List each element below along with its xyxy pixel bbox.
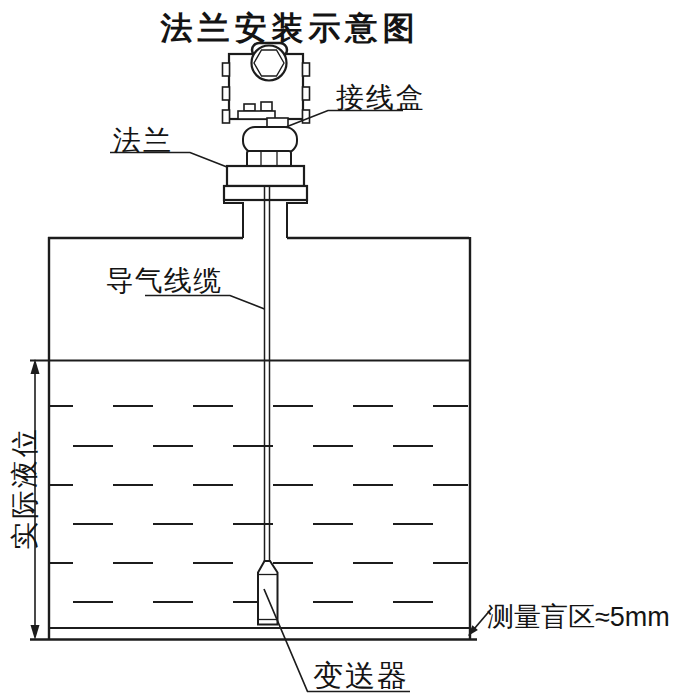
tank-nozzle [224, 200, 307, 238]
vent-cable [265, 186, 270, 562]
label-vent-cable: 导气线缆 [106, 262, 222, 300]
diagram-title: 法兰安装示意图 [140, 7, 440, 51]
flange-plate-lower [224, 186, 307, 200]
flange-installation-diagram: 法兰安装示意图 接线盒 法兰 导气线缆 实际液位 测量盲区≈5mm 变送器 [0, 0, 700, 700]
label-flange: 法兰 [113, 122, 173, 160]
flange-plate-upper [227, 166, 304, 186]
label-junction-box: 接线盒 [336, 79, 426, 117]
label-transmitter: 变送器 [313, 656, 409, 697]
label-blind-zone: 测量盲区≈5mm [487, 599, 670, 635]
coupling [243, 127, 297, 153]
transmitter-head [223, 43, 310, 200]
label-actual-level: 实际液位 [6, 426, 36, 550]
tank-outline [30, 237, 477, 640]
